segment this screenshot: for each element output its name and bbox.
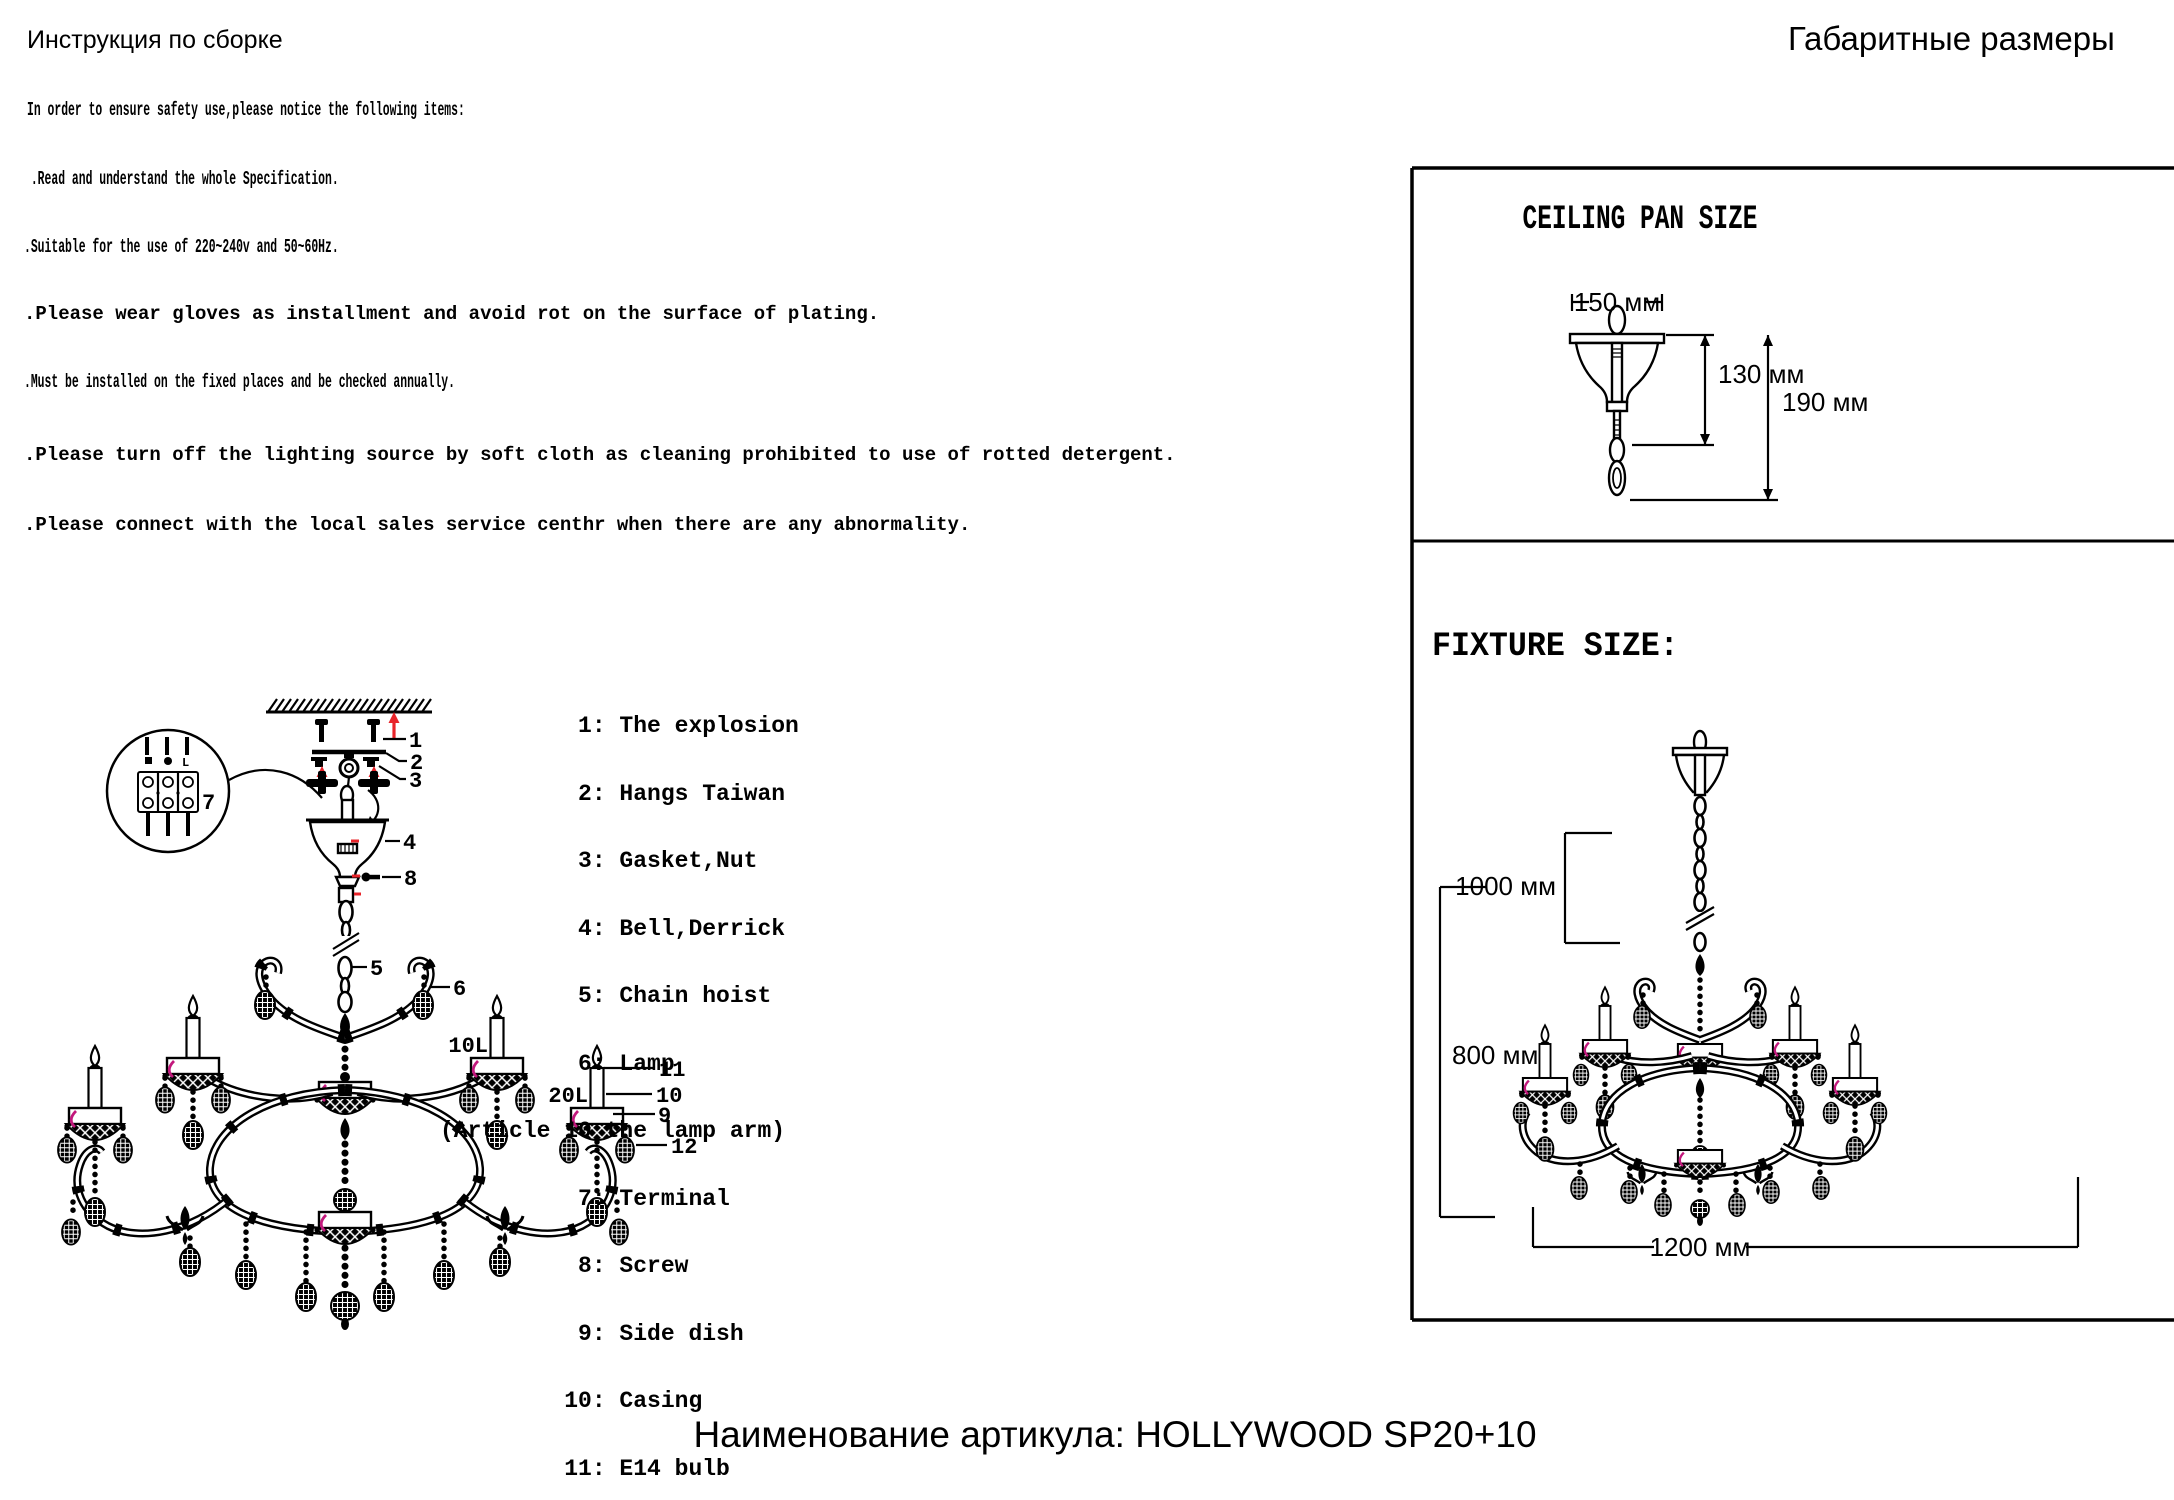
page: 1 2 3 — [0, 0, 2174, 1500]
line-art: 1 2 3 — [0, 0, 2174, 1500]
parts-list-line: 8: Screw — [440, 1255, 799, 1278]
page-title: Инструкция по сборке — [27, 26, 283, 55]
fixture-section: FIXTURE SIZE: — [1432, 627, 2078, 1262]
parts-list-line: 11: E14 bulb — [440, 1458, 799, 1481]
callout-5: 5 — [370, 957, 383, 982]
terminal-detail-circle: L 7 — [107, 730, 322, 852]
parts-list-line: 3: Gasket,Nut — [440, 850, 799, 873]
callout-7: 7 — [202, 791, 215, 816]
safety-item: .Must be installed on the fixed places a… — [24, 371, 455, 393]
safety-item: .Please connect with the local sales ser… — [24, 514, 970, 536]
fixture-title: FIXTURE SIZE: — [1432, 627, 1679, 665]
parts-list: 1: The explosion 2: Hangs Taiwan 3: Gask… — [440, 670, 799, 1500]
safety-item: .Read and understand the whole Specifica… — [24, 168, 339, 190]
safety-item: .Suitable for the use of 220~240v and 50… — [24, 236, 339, 258]
screw-icon — [362, 873, 381, 882]
dimensions-panel: CEILING PAN SIZE 150 мм — [1412, 168, 2174, 1320]
parts-list-line: 2: Hangs Taiwan — [440, 783, 799, 806]
parts-list-line: 6: Lamp — [440, 1053, 799, 1076]
ceiling-pan-drawing — [1570, 306, 1664, 495]
mounting-screws — [315, 719, 380, 742]
dim-1200: 1200 мм — [1533, 1177, 2078, 1262]
safety-intro: In order to ensure safety use,please not… — [27, 99, 465, 121]
parts-list-line: (Article 10 the lamp arm) — [440, 1120, 799, 1143]
dim-150-label: 150 мм — [1574, 287, 1660, 317]
dim-130-label: 130 мм — [1718, 359, 1804, 389]
ceiling-pan-title: CEILING PAN SIZE — [1523, 199, 1758, 238]
dim-1200-label: 1200 мм — [1650, 1232, 1751, 1262]
ceiling-pan-section: CEILING PAN SIZE 150 мм — [1523, 199, 1869, 500]
canopy-bell — [306, 786, 389, 902]
terminal-label-l: L — [182, 756, 189, 770]
callout-3: 3 — [409, 769, 422, 794]
safety-item: .Please wear gloves as installment and a… — [24, 303, 879, 325]
parts-list-line: 9: Side dish — [440, 1323, 799, 1346]
parts-list-line: 7: Terminal — [440, 1188, 799, 1211]
article-name: Наименование артикула: HOLLYWOOD SP20+10 — [600, 1414, 1630, 1456]
dim-150: 150 мм — [1572, 287, 1662, 317]
dim-800-label: 800 мм — [1452, 1040, 1538, 1070]
dim-800: 800 мм — [1440, 887, 1538, 1217]
fixture-drawing — [1514, 731, 1887, 1226]
parts-list-line: 4: Bell,Derrick — [440, 918, 799, 941]
callout-8: 8 — [404, 867, 417, 892]
terminal-block — [138, 772, 198, 836]
dim-190-label: 190 мм — [1782, 387, 1868, 417]
dim-130: 130 мм — [1632, 335, 1804, 445]
parts-list-line: 10: Casing — [440, 1390, 799, 1413]
parts-list-line: 5: Chain hoist — [440, 985, 799, 1008]
callout-4: 4 — [403, 831, 416, 856]
parts-list-line: 1: The explosion — [440, 715, 799, 738]
chain — [331, 901, 361, 1044]
ceiling-hatch — [266, 699, 432, 712]
dimensions-title: Габаритные размеры — [1788, 20, 2115, 58]
safety-item: .Please turn off the lighting source by … — [24, 444, 1176, 466]
